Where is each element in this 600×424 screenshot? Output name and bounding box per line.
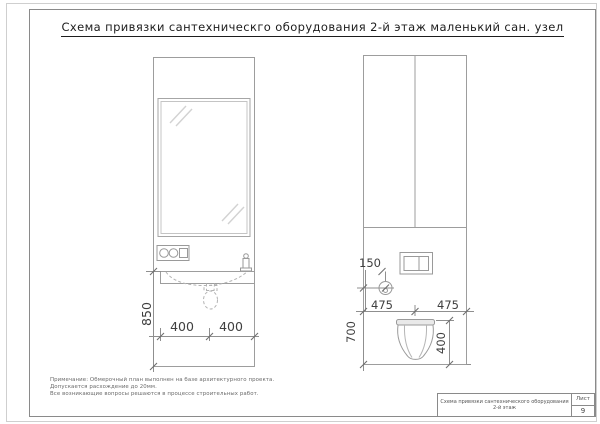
title-block-document-title: Схема привязки сантехнического оборудова…: [438, 394, 571, 416]
dim-label-400-left: 400: [162, 320, 202, 334]
note-line-3: Все возникающие вопросы решаются в проце…: [50, 391, 274, 398]
dim-label-475-right: 475: [428, 298, 468, 312]
sheet-label: Лист: [572, 394, 594, 406]
elevation-linework: [0, 0, 600, 424]
title-block: Схема привязки сантехнического оборудова…: [437, 393, 595, 417]
dim-label-400-bowl: 400: [434, 323, 448, 363]
notes-block: Примечание: Обмерочный план выполнен на …: [50, 377, 274, 399]
dim-label-150: 150: [350, 256, 390, 270]
title-block-sheet-cell: Лист 9: [571, 394, 594, 416]
note-line-2: Допускается расхождение до 20мм.: [50, 384, 274, 391]
dim-label-475-left: 475: [362, 298, 402, 312]
dim-label-700: 700: [344, 312, 358, 352]
note-line-1: Примечание: Обмерочный план выполнен на …: [50, 377, 274, 384]
right-elevation-wc: [356, 56, 474, 372]
dim-label-400-right: 400: [211, 320, 251, 334]
drawing-sheet: Схема привязки сантехническго оборудован…: [0, 0, 600, 424]
dim-label-850: 850: [140, 294, 154, 334]
sheet-number: 9: [572, 406, 594, 417]
